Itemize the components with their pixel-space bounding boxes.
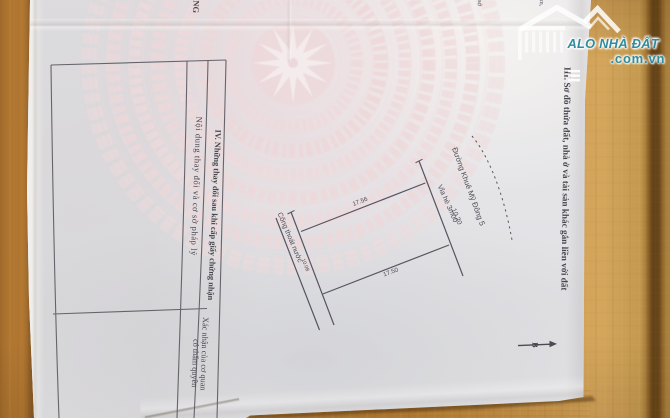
svg-text:Vỉa hè 3m00: Vỉa hè 3m00	[436, 183, 461, 224]
svg-text:có thẩm quyền: có thẩm quyền	[190, 339, 201, 387]
svg-text:sở: sở	[476, 0, 483, 7]
svg-text:NG: NG	[191, 0, 201, 13]
svg-text:IV. Những thay đổi sau khi cấp: IV. Những thay đổi sau khi cấp giấy chứn…	[206, 129, 222, 300]
svg-text:B: B	[530, 342, 539, 348]
svg-text:17.50: 17.50	[382, 266, 399, 278]
svg-text:III. Sơ đồ thửa đất, nhà ở và: III. Sơ đồ thửa đất, nhà ở và tài sản kh…	[559, 67, 572, 292]
